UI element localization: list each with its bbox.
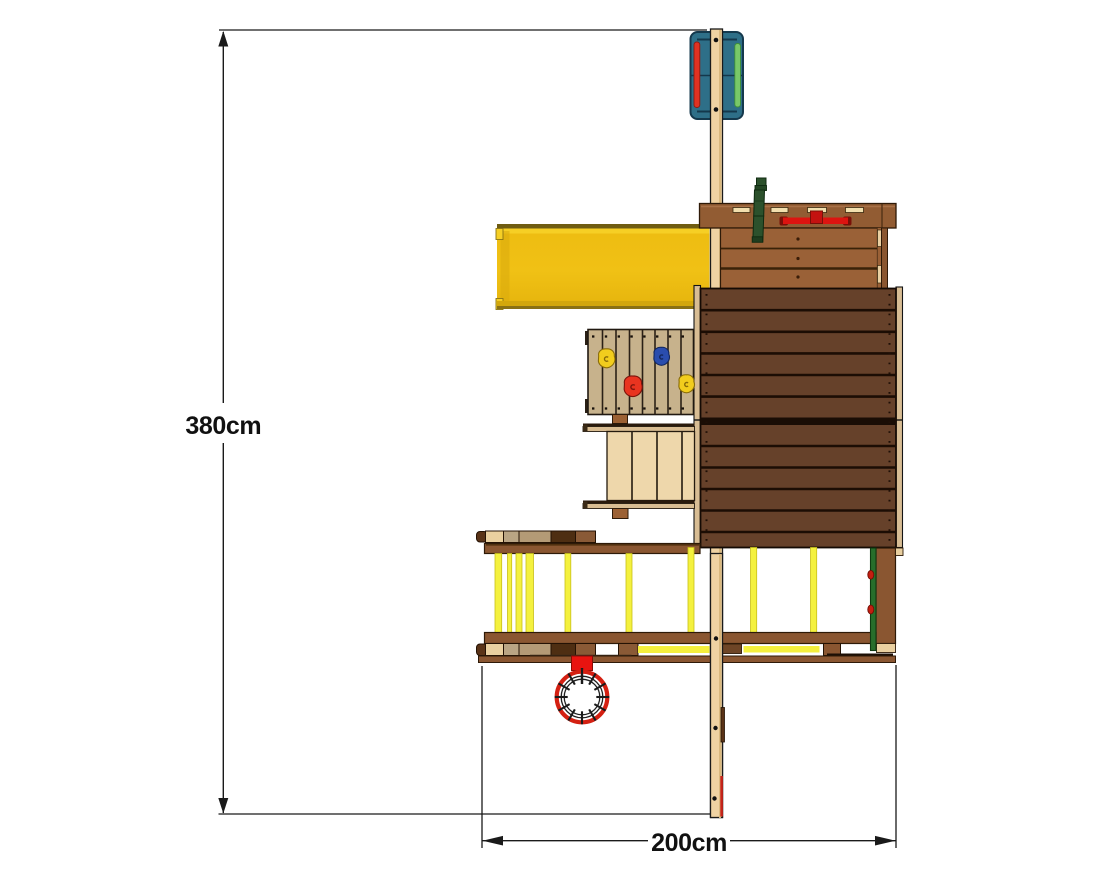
svg-text:200cm: 200cm: [651, 829, 727, 857]
svg-text:380cm: 380cm: [185, 412, 261, 440]
